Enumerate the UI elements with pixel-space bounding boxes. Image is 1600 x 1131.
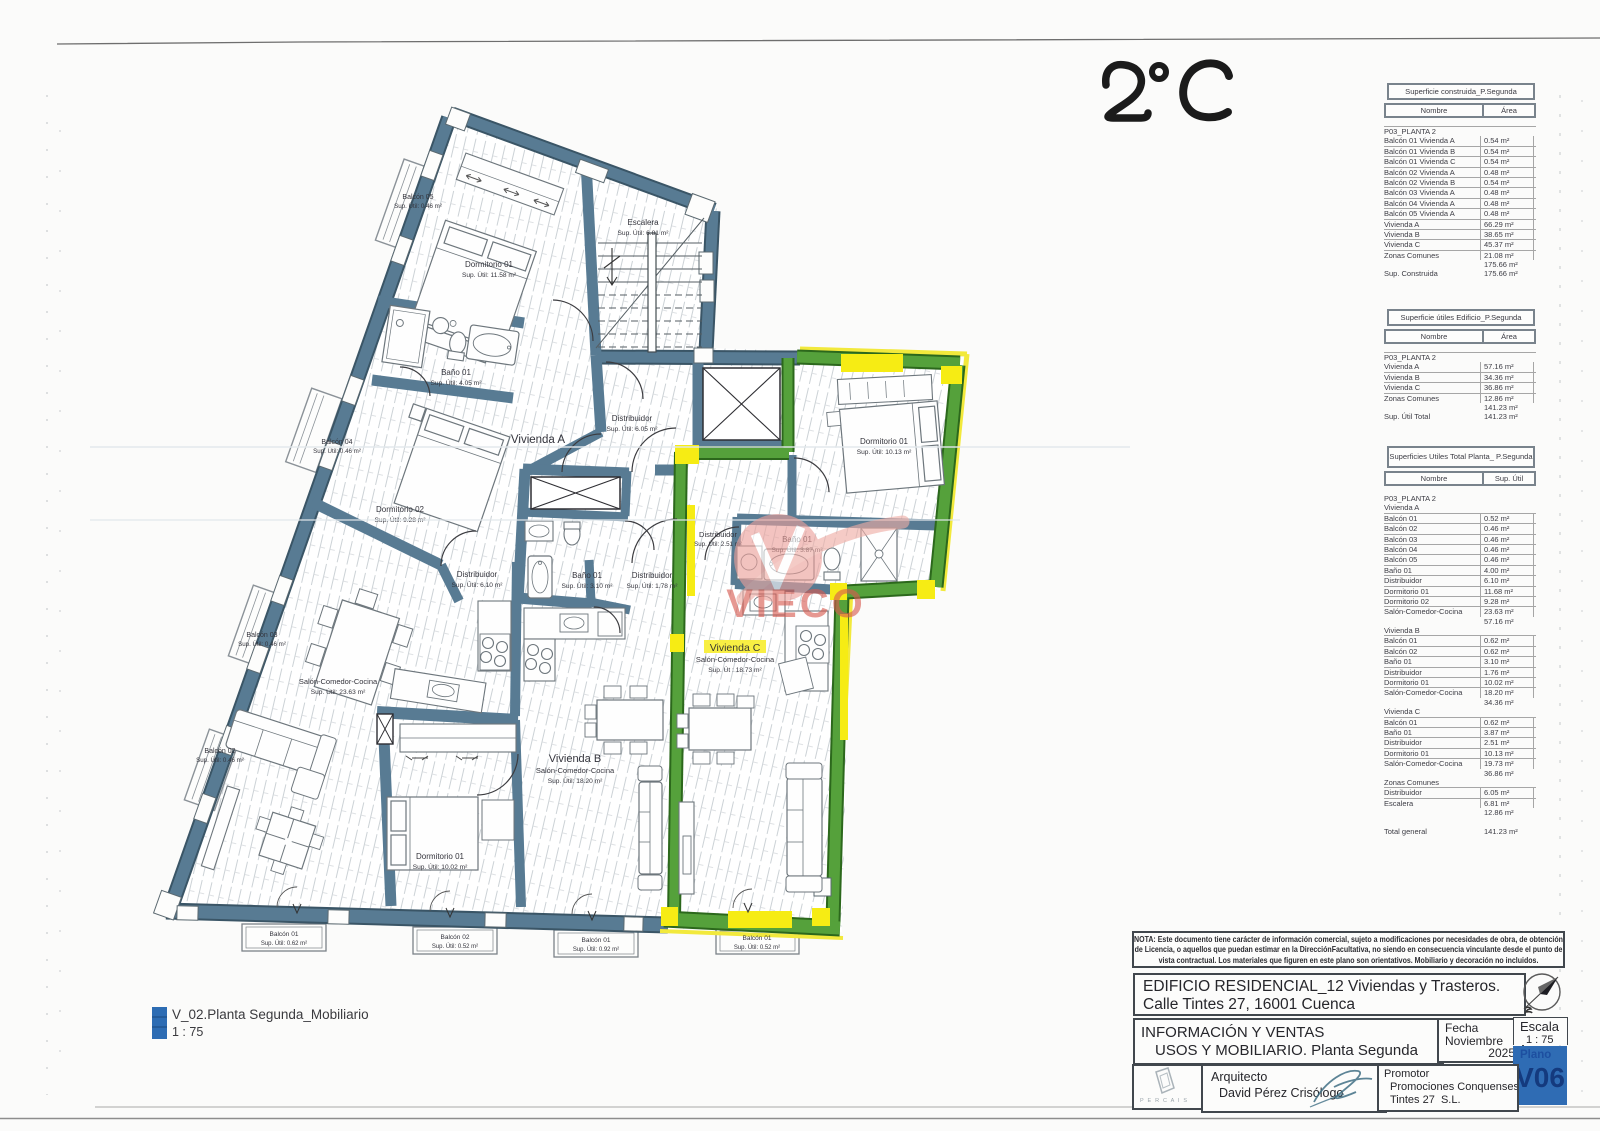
svg-text:Escalera: Escalera xyxy=(627,218,659,227)
svg-text:Distribuidor: Distribuidor xyxy=(632,571,673,580)
svg-text:Sup. Útil: 0.46 m²: Sup. Útil: 0.46 m² xyxy=(196,757,244,764)
svg-text:Distribuidor: Distribuidor xyxy=(612,414,653,423)
svg-text:Vivienda C: Vivienda C xyxy=(710,642,761,654)
svg-text:Balcón 02: Balcón 02 xyxy=(204,748,235,755)
svg-text:Dormitorio 01: Dormitorio 01 xyxy=(465,260,514,269)
svg-text:Sup. Útil: 6.05 m²: Sup. Útil: 6.05 m² xyxy=(607,424,659,433)
svg-text:Sup. Út : 18.73 m²: Sup. Út : 18.73 m² xyxy=(708,665,762,674)
svg-text:Balcón 01: Balcón 01 xyxy=(582,937,611,944)
svg-text:Salón-Comedor-Cocina: Salón-Comedor-Cocina xyxy=(696,655,775,664)
svg-text:Sup. Útil: 0.46 m²: Sup. Útil: 0.46 m² xyxy=(313,448,361,455)
svg-text:Vivienda B: Vivienda B xyxy=(549,753,601,765)
svg-text:Sup. Útil: 0.46 m²: Sup. Útil: 0.46 m² xyxy=(394,203,442,210)
svg-text:Distribuidor: Distribuidor xyxy=(457,570,498,579)
svg-text:Sup. Útil: 1.78 m²: Sup. Útil: 1.78 m² xyxy=(627,581,679,590)
svg-text:Dormitorio 01: Dormitorio 01 xyxy=(416,852,465,861)
svg-text:Dormitorio 01: Dormitorio 01 xyxy=(860,437,909,446)
svg-text:Vivienda A: Vivienda A xyxy=(511,434,565,446)
svg-text:Balcón 05: Balcón 05 xyxy=(402,194,433,201)
svg-text:Salón-Comedor-Cocina: Salón-Comedor-Cocina xyxy=(299,677,378,686)
svg-text:Sup. Útil: 23.63 m²: Sup. Útil: 23.63 m² xyxy=(311,687,366,696)
svg-text:Baño 01: Baño 01 xyxy=(441,368,471,377)
svg-text:Sup. Útil: 2.51 m²: Sup. Útil: 2.51 m² xyxy=(694,541,742,548)
svg-text:Sup. Útil: 11.58 m²: Sup. Útil: 11.58 m² xyxy=(462,270,517,279)
svg-text:Sup. Útil: 0.52 m²: Sup. Útil: 0.52 m² xyxy=(432,943,478,950)
svg-text:Balcón 04: Balcón 04 xyxy=(321,439,352,446)
svg-text:Sup. Útil: 18.20 m²: Sup. Útil: 18.20 m² xyxy=(548,776,603,785)
svg-text:Sup. Útil: 4.05 m²: Sup. Útil: 4.05 m² xyxy=(431,378,483,387)
svg-text:Sup. Útil: 0.46 m²: Sup. Útil: 0.46 m² xyxy=(238,641,286,648)
svg-text:Sup. Útil: 6.10 m²: Sup. Útil: 6.10 m² xyxy=(452,580,504,589)
svg-text:Baño 01: Baño 01 xyxy=(572,571,602,580)
svg-text:Dormitorio 02: Dormitorio 02 xyxy=(376,505,425,514)
svg-text:Balcón 01: Balcón 01 xyxy=(270,931,299,938)
svg-text:Sup. Útil: 0.62 m²: Sup. Útil: 0.62 m² xyxy=(261,940,307,947)
svg-text:Balcón 03: Balcón 03 xyxy=(246,632,277,639)
svg-text:Sup. Útil: 0.92 m²: Sup. Útil: 0.92 m² xyxy=(573,946,619,953)
svg-text:Sup. Útil: 10.13 m²: Sup. Útil: 10.13 m² xyxy=(857,447,912,456)
svg-text:Salón-Comedor-Cocina: Salón-Comedor-Cocina xyxy=(536,766,615,775)
svg-text:Balcón 02: Balcón 02 xyxy=(441,934,470,941)
svg-text:Distribuidor: Distribuidor xyxy=(699,530,737,539)
svg-text:Sup. Útil: 0.52 m²: Sup. Útil: 0.52 m² xyxy=(734,944,780,951)
svg-text:VIECO: VIECO xyxy=(726,582,865,626)
svg-text:Balcón 01: Balcón 01 xyxy=(743,935,772,942)
svg-text:Sup. Útil: 6.81 m²: Sup. Útil: 6.81 m² xyxy=(618,228,670,237)
svg-text:Sup. Útil: 3.10 m²: Sup. Útil: 3.10 m² xyxy=(562,581,614,590)
svg-text:Sup. Útil: 10.02 m²: Sup. Útil: 10.02 m² xyxy=(413,862,468,871)
